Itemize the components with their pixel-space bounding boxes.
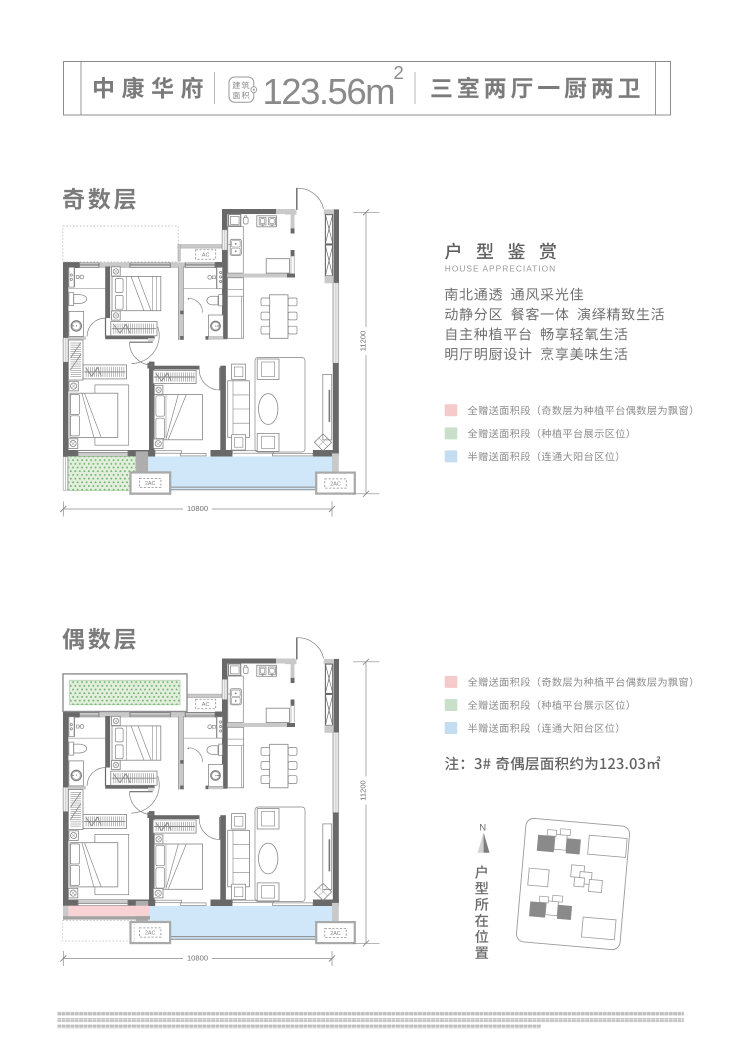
svg-text:HOUSE APPRECIATION: HOUSE APPRECIATION xyxy=(445,264,556,274)
svg-text:2: 2 xyxy=(394,62,404,83)
svg-text:123.56m: 123.56m xyxy=(263,71,395,112)
svg-text:N: N xyxy=(479,823,486,834)
svg-text:2AC: 2AC xyxy=(145,481,156,487)
